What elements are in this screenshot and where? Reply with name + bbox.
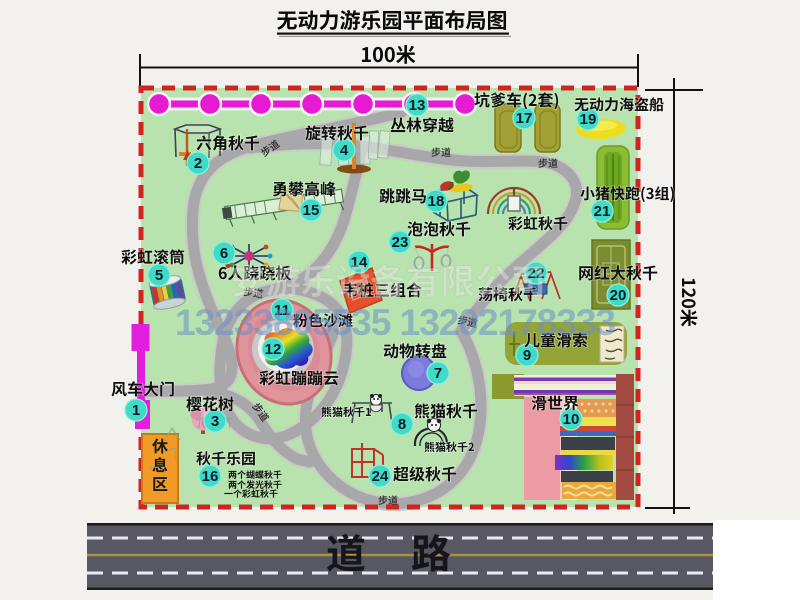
svg-text:15: 15 [303, 202, 320, 219]
svg-text:13233805535 13202178333: 13233805535 13202178333 [175, 302, 615, 343]
svg-text:4: 4 [340, 142, 349, 159]
svg-text:2: 2 [194, 155, 202, 172]
svg-text:9: 9 [523, 347, 531, 364]
svg-text:18: 18 [428, 193, 445, 210]
svg-text:13: 13 [409, 97, 426, 114]
svg-text:5: 5 [155, 267, 163, 284]
svg-text:23: 23 [392, 234, 409, 251]
svg-text:12: 12 [265, 341, 282, 358]
svg-text:8: 8 [398, 416, 406, 433]
svg-text:17: 17 [516, 110, 533, 127]
svg-text:24: 24 [372, 468, 389, 485]
svg-text:21: 21 [594, 203, 611, 220]
svg-text:7: 7 [434, 365, 442, 382]
svg-text:3: 3 [211, 413, 219, 430]
svg-text:16: 16 [202, 468, 219, 485]
svg-text:10: 10 [563, 411, 580, 428]
svg-text:1: 1 [132, 402, 140, 419]
svg-text:6: 6 [220, 245, 228, 262]
svg-text:19: 19 [580, 111, 597, 128]
